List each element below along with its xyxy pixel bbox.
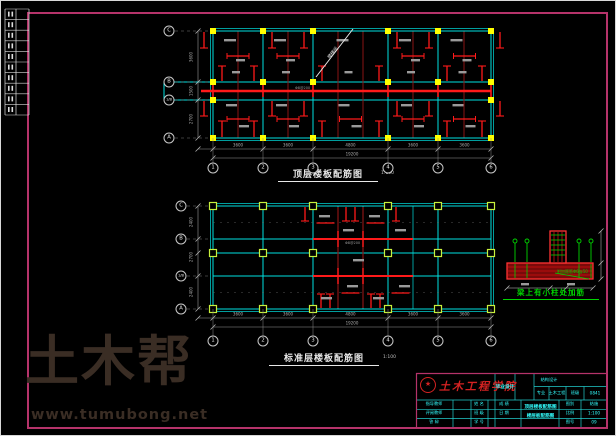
rebar-annotation: Φ8@200 — [345, 241, 360, 245]
dimension-text: 3600 — [459, 143, 469, 148]
axis-bubble: 1/B — [164, 95, 175, 106]
project-name: 结构设计 — [541, 377, 558, 383]
dimension-text: 2400 — [189, 287, 194, 297]
dimension-text: 3600 — [189, 51, 194, 61]
top-plan-title: 顶层楼板配筋图 — [278, 167, 378, 182]
dimension-text: 2400 — [189, 217, 194, 227]
tb-fignum-label: 图号 — [566, 419, 574, 425]
detail-leader-note: 附加箍筋Φ6@50 — [557, 269, 588, 275]
watermark-url: www.tumubong.net — [31, 407, 208, 423]
axis-bubble: 2 — [258, 163, 269, 174]
dimension-text: 19200 — [346, 152, 359, 157]
bottom-plan-scale: 1:100 — [383, 355, 396, 360]
dimension-text: 4800 — [345, 312, 355, 317]
axis-bubble: 6 — [486, 163, 497, 174]
watermark-brand: 土木帮 — [25, 335, 193, 389]
dimension-text: 3600 — [233, 312, 243, 317]
axis-bubble: 5 — [433, 163, 444, 174]
dimension-text: 3600 — [459, 312, 469, 317]
dimension-text: 4800 — [345, 143, 355, 148]
axis-bubble: 1/B — [176, 271, 187, 282]
dimension-text: 3600 — [283, 312, 293, 317]
dimension-text: 1500 — [189, 86, 194, 96]
tb-row-label: 成 绩 — [499, 401, 509, 407]
class-value: 0841 — [590, 391, 601, 396]
dimension-text: 2700 — [189, 252, 194, 262]
dimension-text: 2700 — [189, 114, 194, 124]
tb-row-label: 指导教师 — [426, 401, 443, 407]
tb-row-label: 答 辩 — [429, 419, 439, 425]
tb-scale-label: 比例 — [566, 410, 574, 416]
doc-type: 毕业设计 — [496, 384, 514, 390]
bottom-plan-title: 标准层楼板配筋图 — [269, 351, 379, 366]
dimension-text: 3600 — [408, 312, 418, 317]
axis-bubble: 3 — [308, 336, 319, 347]
axis-bubble: C — [176, 201, 187, 212]
axis-bubble: 3 — [308, 163, 319, 174]
tb-figclass-value: 结施 — [590, 401, 598, 407]
tb-row-label: 学 号 — [474, 419, 484, 425]
tb-fignum-value: 09 — [591, 420, 596, 425]
detail-title: 梁上有小柱处加筋 — [503, 287, 599, 300]
tb-figclass-label: 图别 — [566, 401, 574, 407]
tb-row-label: 姓 名 — [474, 401, 484, 407]
detail-linework — [505, 229, 604, 291]
axis-bubble: 4 — [383, 163, 394, 174]
axis-bubble: A — [164, 133, 175, 144]
class-label: 班级 — [571, 390, 579, 396]
cad-drawing-canvas[interactable]: 顶层楼板配筋图 1:100 标准层楼板配筋图 1:100 楼梯间 Φ8@200 … — [0, 0, 616, 436]
tb-row-label: 班 级 — [474, 410, 484, 416]
rebar-annotation: Φ8@200 — [295, 86, 310, 90]
major-label: 专业 — [537, 390, 545, 396]
tb-row-label: 日 期 — [499, 410, 509, 416]
dimension-text: 19200 — [346, 321, 359, 326]
dimension-text: 3600 — [283, 143, 293, 148]
axis-bubble: A — [176, 304, 187, 315]
left-revision-strip — [5, 9, 29, 115]
school-logo-icon: ★ — [420, 377, 436, 393]
axis-bubble: 2 — [258, 336, 269, 347]
axis-bubble: B — [164, 77, 175, 88]
tb-drawing-name: 顶层楼板配筋图 楼层板配筋图 — [522, 404, 559, 421]
major-value: 土木工程 — [549, 390, 566, 396]
axis-bubble: 1 — [208, 163, 219, 174]
tb-row-label: 评阅教师 — [426, 410, 443, 416]
axis-bubble: 6 — [486, 336, 497, 347]
axis-bubble: B — [176, 234, 187, 245]
dimension-text: 3600 — [233, 143, 243, 148]
dimension-text: 3600 — [408, 143, 418, 148]
axis-bubble: 5 — [433, 336, 444, 347]
tb-scale-value: 1:100 — [588, 411, 600, 416]
axis-bubble: 1 — [208, 336, 219, 347]
axis-bubble: C — [164, 26, 175, 37]
axis-bubble: 4 — [383, 336, 394, 347]
